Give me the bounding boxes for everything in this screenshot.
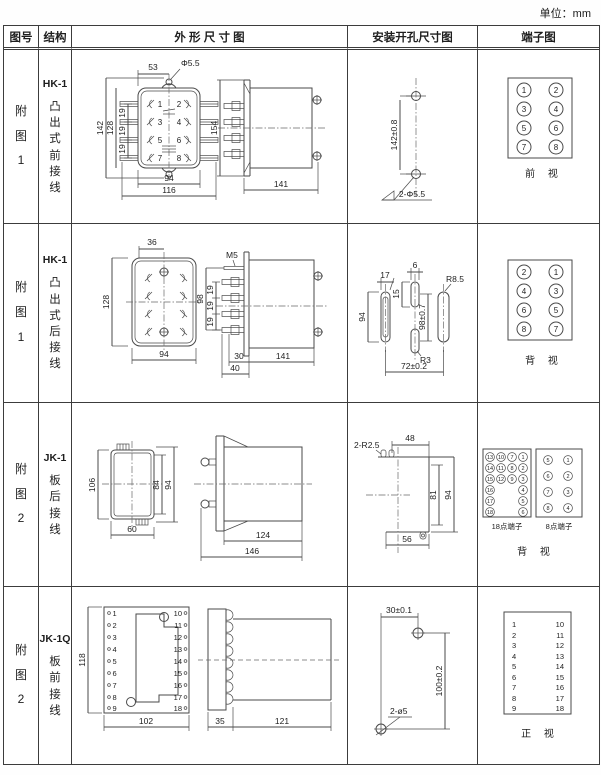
structure-row3: JK-1 板 后 接 线 xyxy=(39,403,72,587)
terminal-number: 4 xyxy=(512,652,516,661)
dim-100-02: 100±0.2 xyxy=(434,665,444,696)
hk1-rear-mounting-svg: 17 94 6 15 98±0.7 R8.5 xyxy=(348,224,478,403)
dim-118: 118 xyxy=(77,653,87,667)
terminal-circles: 2 4 6 8 1 3 5 7 xyxy=(517,265,563,336)
jk1q-outline-svg: 1 2 3 4 5 6 7 8 9 10 11 12 13 xyxy=(72,587,348,764)
dim-72-02: 72±0.2 xyxy=(401,361,427,371)
terminal-number: 18 xyxy=(487,510,493,516)
front-view: 1 2 3 4 5 6 7 8 xyxy=(120,74,218,182)
header-mounting-holes: 安装开孔尺寸图 xyxy=(348,26,478,50)
terminal-number: 5 xyxy=(522,124,527,133)
mounting-drawing-row2: 17 94 6 15 98±0.7 R8.5 xyxy=(348,224,478,403)
panel-num: 5 xyxy=(113,657,117,666)
terminal-number: 12 xyxy=(556,641,564,650)
terminal-number: 4 xyxy=(521,488,524,494)
terminal-number: 8 xyxy=(546,506,549,512)
terminal-number: 5 xyxy=(554,306,559,315)
model-label: HK-1 xyxy=(43,78,68,90)
dim-19: 19 xyxy=(117,108,127,118)
terminal-number: 7 xyxy=(510,455,513,461)
model-label: JK-1Q xyxy=(40,633,71,645)
structure-row2: HK-1 凸 出 式 后 接 线 xyxy=(39,224,72,403)
datasheet-page: 单位：mm 图号 结构 外 形 尺 寸 图 安装开孔尺寸图 端子图 附 图 1 … xyxy=(0,0,601,775)
model-label: JK-1 xyxy=(44,452,67,464)
hk1-rear-outline-svg: 36 128 94 M5 xyxy=(72,224,348,403)
terminal-number: 13 xyxy=(487,455,493,461)
dim-141: 141 xyxy=(274,179,288,189)
view-caption: 背 视 xyxy=(525,354,563,367)
header-fig-no: 图号 xyxy=(4,26,39,50)
panel-num: 3 xyxy=(158,118,163,127)
hk1-front-terminal-svg: 1 3 5 7 2 4 6 8 前 视 xyxy=(478,50,599,224)
terminal-number: 6 xyxy=(546,474,549,480)
view-caption: 正 视 xyxy=(521,727,559,740)
terminal-number: 2 xyxy=(521,466,524,472)
dim-84: 84 xyxy=(151,480,161,490)
terminal-number: 2 xyxy=(566,474,569,480)
hk1-front-mounting-svg: 142±0.8 2-Φ5.5 xyxy=(348,50,478,224)
panel-num: 16 xyxy=(174,681,182,690)
dim-128: 128 xyxy=(105,121,115,135)
panel-num: 15 xyxy=(174,669,182,678)
dim-146: 146 xyxy=(245,546,259,556)
terminal-number: 5 xyxy=(521,499,524,505)
panel-num: 8 xyxy=(177,154,182,163)
panel-num: 5 xyxy=(158,136,163,145)
terminal-number: 3 xyxy=(554,287,559,296)
panel-num: 8 xyxy=(113,693,117,702)
terminal-number: 7 xyxy=(554,325,559,334)
dim-56: 56 xyxy=(402,534,412,544)
jk1-mounting-svg: 2-R2.5 48 81 94 56 xyxy=(348,403,478,587)
terminal-number: 18 xyxy=(556,704,564,713)
fig-no-row3: 附 图 2 xyxy=(4,403,39,587)
front-right-terminals: 10 11 12 13 14 15 16 17 18 xyxy=(174,609,187,713)
units-label: 单位：mm xyxy=(540,5,591,21)
terminal-number: 13 xyxy=(556,652,564,661)
dim-30: 30 xyxy=(234,351,244,361)
terminal-number: 5 xyxy=(546,458,549,464)
terminal-number: 17 xyxy=(556,694,564,703)
panel-num: 13 xyxy=(174,645,182,654)
terminal-number: 7 xyxy=(512,683,516,692)
panel-num: 1 xyxy=(158,100,163,109)
terminal-number: 14 xyxy=(556,662,564,671)
outline-drawing-row2: 36 128 94 M5 xyxy=(72,224,348,403)
header-outline-drawing: 外 形 尺 寸 图 xyxy=(72,26,348,50)
dim-81: 81 xyxy=(428,490,438,500)
jk1q-terminal-svg: 1 2 3 4 5 6 7 8 9 10 11 12 13 14 15 xyxy=(478,587,599,764)
outline-drawing-row3: 106 84 94 60 xyxy=(72,403,348,587)
terminal-number: 11 xyxy=(556,631,564,640)
dim-128: 128 xyxy=(101,295,111,309)
dim-53: 53 xyxy=(148,62,158,72)
dim-142-08: 142±0.8 xyxy=(389,119,399,150)
terminal-number: 9 xyxy=(510,477,513,483)
side-view: 35 121 xyxy=(198,609,339,731)
mounting-drawing-row4: 30±0.1 100±0.2 2-ø5 xyxy=(348,587,478,764)
dim-2-holes: 2-Φ5.5 xyxy=(399,189,425,199)
panel-num: 4 xyxy=(177,118,182,127)
header-structure: 结构 xyxy=(39,26,72,50)
dim-60: 60 xyxy=(127,524,137,534)
dim-2-holes: 2-ø5 xyxy=(390,706,408,716)
dim-r85: R8.5 xyxy=(446,274,464,284)
terminal-number: 4 xyxy=(554,105,559,114)
terminal-number: 10 xyxy=(556,620,564,629)
jk1-outline-svg: 106 84 94 60 xyxy=(72,403,348,587)
dim-36: 36 xyxy=(147,237,157,247)
terminal-block-18: 13 14 15 16 17 18 10 11 12 7 8 9 1 2 3 4 xyxy=(483,449,531,531)
terminal-number: 1 xyxy=(522,86,527,95)
jk1q-mounting-svg: 30±0.1 100±0.2 2-ø5 xyxy=(348,587,478,764)
dim-121: 121 xyxy=(275,716,289,726)
dim-35: 35 xyxy=(215,716,225,726)
terminal-number: 1 xyxy=(566,458,569,464)
front-view: 1 2 3 4 5 6 7 8 9 10 11 12 13 xyxy=(77,607,189,731)
panel-num: 2 xyxy=(113,621,117,630)
terminal-number: 14 xyxy=(487,466,493,472)
dim-19: 19 xyxy=(205,285,215,295)
dim-116: 116 xyxy=(162,185,176,195)
dim-17: 17 xyxy=(380,270,390,280)
terminal-number: 1 xyxy=(554,268,559,277)
terminal-number: 6 xyxy=(512,673,516,682)
terminal-18-label: 18点端子 xyxy=(492,521,523,531)
terminal-number: 15 xyxy=(556,673,564,682)
dim-142: 142 xyxy=(95,121,105,135)
dim-98-07: 98±0.7 xyxy=(417,304,427,330)
side-view: 124 146 xyxy=(194,436,312,561)
dim-19: 19 xyxy=(117,126,127,136)
dim-48: 48 xyxy=(405,433,415,443)
dim-2-r25: 2-R2.5 xyxy=(354,440,380,450)
fig-no-row4: 附 图 2 xyxy=(4,587,39,764)
terminal-number: 3 xyxy=(566,490,569,496)
terminal-number: 3 xyxy=(512,641,516,650)
terminal-number: 9 xyxy=(512,704,516,713)
terminal-number: 8 xyxy=(522,325,527,334)
terminal-8-label: 8点端子 xyxy=(546,521,573,531)
header-terminal-diagram: 端子图 xyxy=(478,26,599,50)
terminal-number: 3 xyxy=(521,477,524,483)
terminal-number: 8 xyxy=(512,694,516,703)
panel-num: 2 xyxy=(177,100,182,109)
panel-num: 3 xyxy=(113,633,117,642)
terminal-number: 4 xyxy=(522,287,527,296)
front-view-dimensions: 53 Φ5.5 142 128 19 19 19 94 xyxy=(95,58,216,200)
terminal-number: 6 xyxy=(554,124,559,133)
dim-hole: Φ5.5 xyxy=(181,58,200,68)
terminal-number: 16 xyxy=(556,683,564,692)
panel-num: 9 xyxy=(113,704,117,713)
panel-num: 6 xyxy=(177,136,182,145)
dim-94: 94 xyxy=(357,312,367,322)
jk1-terminal-svg: 13 14 15 16 17 18 10 11 12 7 8 9 1 2 3 4 xyxy=(478,403,599,587)
terminal-number: 6 xyxy=(521,510,524,516)
terminal-number: 11 xyxy=(498,466,504,472)
terminal-block-8: 5 6 7 8 1 2 3 4 8点端子 xyxy=(536,449,582,531)
panel-num: 10 xyxy=(174,609,182,618)
mounting-drawing-row1: 142±0.8 2-Φ5.5 xyxy=(348,50,478,224)
dim-19: 19 xyxy=(117,144,127,154)
terminal-diagram-row4: 1 2 3 4 5 6 7 8 9 10 11 12 13 14 15 xyxy=(478,587,599,764)
panel-num: 12 xyxy=(174,633,182,642)
structure-row1: HK-1 凸 出 式 前 接 线 xyxy=(39,50,72,224)
dim-6: 6 xyxy=(413,260,418,270)
dim-94: 94 xyxy=(159,349,169,359)
fig-no-row1: 附 图 1 xyxy=(4,50,39,224)
dim-15: 15 xyxy=(391,289,401,299)
terminal-diagram-row3: 13 14 15 16 17 18 10 11 12 7 8 9 1 2 3 4 xyxy=(478,403,599,587)
dim-94: 94 xyxy=(164,173,174,183)
dim-40: 40 xyxy=(230,363,240,373)
dim-154: 154 xyxy=(209,121,219,135)
panel-num: 6 xyxy=(113,669,117,678)
side-view: M5 98 19 19 19 xyxy=(195,250,328,378)
terminal-number: 1 xyxy=(521,455,524,461)
terminal-number: 17 xyxy=(487,499,493,505)
terminal-number: 2 xyxy=(554,86,559,95)
terminal-number: 1 xyxy=(512,620,516,629)
front-view: 106 84 94 60 xyxy=(87,441,178,539)
panel-num: 11 xyxy=(174,621,182,630)
front-view: 36 128 94 xyxy=(101,237,202,364)
dim-124: 124 xyxy=(256,530,270,540)
dim-19: 19 xyxy=(205,317,215,327)
panel-num: 17 xyxy=(174,693,182,702)
terminal-numbers-right: 10 11 12 13 14 15 16 17 18 xyxy=(556,620,564,713)
outline-drawing-row4: 1 2 3 4 5 6 7 8 9 10 11 12 13 xyxy=(72,587,348,764)
terminal-diagram-row1: 1 3 5 7 2 4 6 8 前 视 xyxy=(478,50,599,224)
terminal-number: 16 xyxy=(487,488,493,494)
hk1-front-outline-svg: 1 2 3 4 5 6 7 8 53 Φ5.5 142 xyxy=(72,50,348,224)
dim-102: 102 xyxy=(139,716,153,726)
dim-94: 94 xyxy=(443,490,453,500)
terminal-number: 6 xyxy=(522,306,527,315)
fig-no-row2: 附 图 1 xyxy=(4,224,39,403)
drawing-table: 图号 结构 外 形 尺 寸 图 安装开孔尺寸图 端子图 附 图 1 HK-1 凸… xyxy=(3,25,600,765)
terminal-number: 2 xyxy=(522,268,527,277)
dim-141: 141 xyxy=(276,351,290,361)
terminal-number: 2 xyxy=(512,631,516,640)
panel-num: 14 xyxy=(174,657,182,666)
panel-num: 7 xyxy=(113,681,117,690)
dim-19: 19 xyxy=(205,301,215,311)
outline-drawing-row1: 1 2 3 4 5 6 7 8 53 Φ5.5 142 xyxy=(72,50,348,224)
view-caption: 前 视 xyxy=(525,167,563,180)
front-left-terminals: 1 2 3 4 5 6 7 8 9 xyxy=(108,609,117,713)
dim-30-01: 30±0.1 xyxy=(386,605,412,615)
terminal-number: 12 xyxy=(498,477,504,483)
structure-row4: JK-1Q 板 前 接 线 xyxy=(39,587,72,764)
side-view: 154 141 xyxy=(209,80,326,194)
terminal-number: 5 xyxy=(512,662,516,671)
terminal-number: 7 xyxy=(522,143,527,152)
dim-94: 94 xyxy=(163,480,173,490)
terminal-number: 7 xyxy=(546,490,549,496)
terminal-diagram-row2: 2 4 6 8 1 3 5 7 背 视 xyxy=(478,224,599,403)
dim-98: 98 xyxy=(195,294,205,304)
terminal-circles: 1 3 5 7 2 4 6 8 xyxy=(517,83,563,154)
panel-num: 7 xyxy=(158,154,163,163)
mounting-drawing-row3: 2-R2.5 48 81 94 56 xyxy=(348,403,478,587)
panel-num: 1 xyxy=(113,609,117,618)
terminal-number: 3 xyxy=(522,105,527,114)
hk1-rear-terminal-svg: 2 4 6 8 1 3 5 7 背 视 xyxy=(478,224,599,403)
terminal-number: 8 xyxy=(510,466,513,472)
terminal-number: 4 xyxy=(566,506,569,512)
model-label: HK-1 xyxy=(43,254,68,266)
view-caption: 背 视 xyxy=(517,545,555,558)
terminal-number: 8 xyxy=(554,143,559,152)
panel-num: 18 xyxy=(174,704,182,713)
terminal-numbers-left: 1 2 3 4 5 6 7 8 9 xyxy=(512,620,516,713)
panel-num: 4 xyxy=(113,645,117,654)
terminal-number: 15 xyxy=(487,477,493,483)
dim-106: 106 xyxy=(87,478,97,492)
label-m5: M5 xyxy=(226,250,238,260)
terminal-number: 10 xyxy=(498,455,504,461)
